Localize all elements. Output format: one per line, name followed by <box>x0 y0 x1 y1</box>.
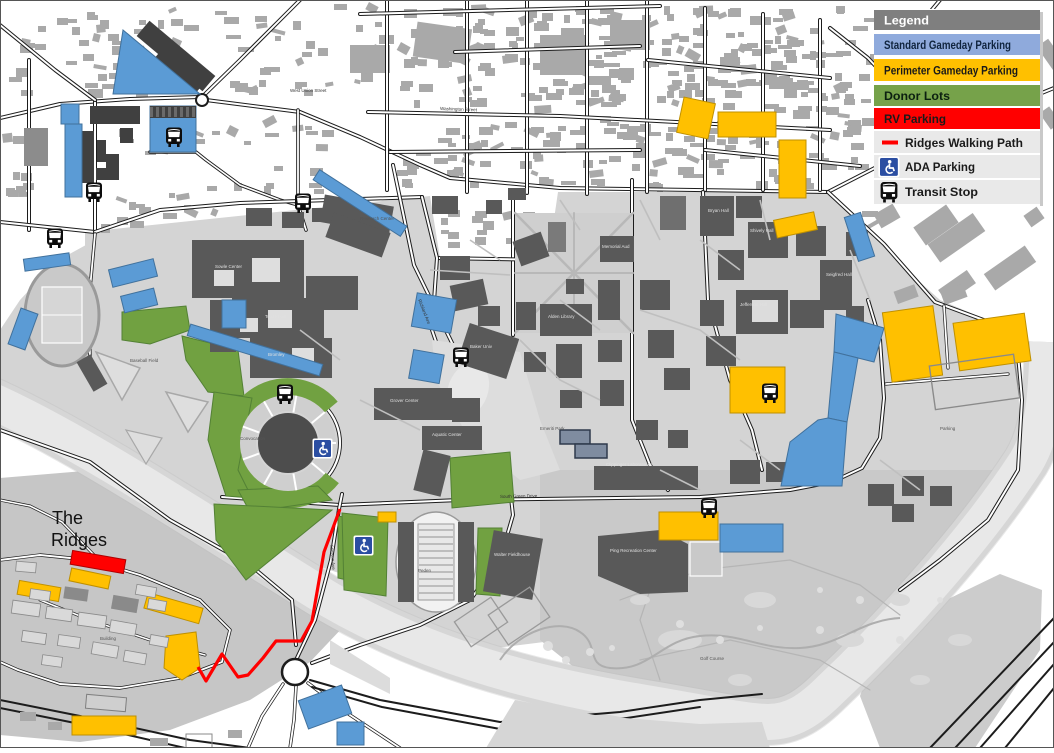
svg-text:Shively Hall: Shively Hall <box>750 228 774 233</box>
svg-text:Clippinger Laboratories: Clippinger Laboratories <box>606 462 653 467</box>
svg-text:Standard Gameday Parking: Standard Gameday Parking <box>884 38 1011 52</box>
svg-text:Grover Center: Grover Center <box>390 398 419 403</box>
svg-text:RV Parking: RV Parking <box>884 112 946 126</box>
svg-text:Aquatic Center: Aquatic Center <box>432 432 462 437</box>
svg-text:Golf Course: Golf Course <box>700 656 725 661</box>
svg-text:South Green Drive: South Green Drive <box>500 493 538 499</box>
svg-text:Bromley: Bromley <box>268 352 285 357</box>
svg-text:Research Center: Research Center <box>360 216 395 221</box>
svg-text:Legend: Legend <box>884 14 929 28</box>
svg-text:Emeriti Park: Emeriti Park <box>540 426 565 431</box>
svg-text:Alden Library: Alden Library <box>548 314 575 319</box>
svg-text:Memorial Aud: Memorial Aud <box>602 244 630 249</box>
svg-text:Building: Building <box>100 636 117 641</box>
svg-text:Tooze Hall: Tooze Hall <box>265 314 286 319</box>
svg-text:Seigfred Hall: Seigfred Hall <box>826 272 852 277</box>
svg-text:Peden: Peden <box>418 568 432 573</box>
svg-text:Sowle Center: Sowle Center <box>215 264 243 269</box>
svg-text:Baker Univ: Baker Univ <box>470 344 493 349</box>
svg-text:ADA Parking: ADA Parking <box>905 160 975 174</box>
svg-text:Perimeter Gameday Parking: Perimeter Gameday Parking <box>884 64 1018 78</box>
svg-text:Baseball Field: Baseball Field <box>130 358 159 363</box>
svg-text:Ping Recreation Center: Ping Recreation Center <box>610 548 657 553</box>
svg-text:The: The <box>52 508 83 528</box>
svg-text:Bryan Hall: Bryan Hall <box>708 208 729 213</box>
svg-text:Donor Lots: Donor Lots <box>884 89 950 103</box>
svg-text:Jefferson Hall: Jefferson Hall <box>740 302 767 307</box>
svg-text:Ridges: Ridges <box>51 530 107 550</box>
svg-text:Parking: Parking <box>940 426 956 431</box>
svg-text:Ridges Walking Path: Ridges Walking Path <box>905 136 1023 150</box>
svg-text:Transit Stop: Transit Stop <box>905 185 978 199</box>
svg-text:Convocation: Convocation <box>240 436 266 441</box>
svg-text:Walter Fieldhouse: Walter Fieldhouse <box>494 552 531 557</box>
svg-text:West Union Street: West Union Street <box>290 88 327 93</box>
